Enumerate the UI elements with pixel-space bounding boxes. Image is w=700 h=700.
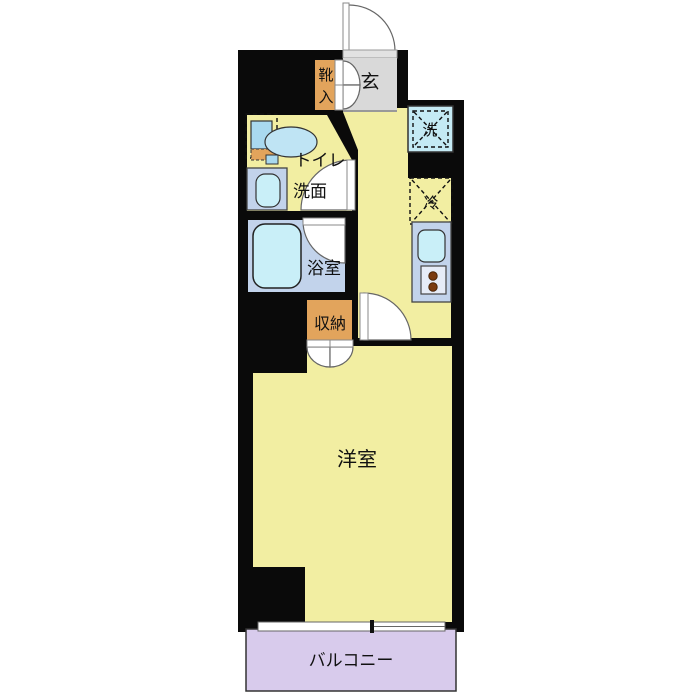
- entrance-door-leaf: [343, 3, 349, 51]
- floor-plan: 玄 靴 入 トイレ 洗面 浴室 収納 洗 冷 洋室 バルコニー: [0, 0, 700, 700]
- shoe-cabinet-door-leaf-bottom: [335, 85, 343, 110]
- sliding-window-latch: [370, 620, 374, 633]
- bathtub: [253, 224, 301, 288]
- western-room-door-leaf: [360, 293, 368, 340]
- label-entrance: 玄: [360, 71, 379, 93]
- label-shoe-cabinet-char1: 靴: [318, 67, 333, 84]
- entrance-door-arc: [349, 5, 395, 51]
- entrance-threshold: [343, 50, 397, 58]
- label-shoe-cabinet-char2: 入: [318, 89, 333, 106]
- toilet-flush-handle: [266, 155, 278, 164]
- label-bathroom: 浴室: [307, 259, 341, 278]
- bathroom-door-leaf: [303, 218, 345, 225]
- toilet-door-leaf: [347, 160, 355, 210]
- label-washer: 洗: [422, 122, 437, 139]
- label-balcony: バルコニー: [309, 651, 394, 670]
- label-western-room: 洋室: [337, 448, 377, 471]
- label-refrigerator: 冷: [423, 195, 438, 212]
- kitchen-sink: [418, 230, 445, 262]
- label-toilet: トイレ: [295, 151, 346, 170]
- stove-burner-2: [429, 283, 437, 291]
- storage-door-leaf-right: [330, 340, 353, 347]
- washbasin-sink: [256, 174, 280, 207]
- label-storage: 収納: [314, 315, 346, 333]
- label-washroom: 洗面: [293, 182, 327, 201]
- floor-plan-canvas: 玄 靴 入 トイレ 洗面 浴室 収納 洗 冷 洋室 バルコニー: [0, 0, 700, 700]
- shoe-cabinet-door-leaf-top: [335, 60, 343, 85]
- stove-burner-1: [429, 272, 437, 280]
- storage-door-leaf-left: [307, 340, 330, 347]
